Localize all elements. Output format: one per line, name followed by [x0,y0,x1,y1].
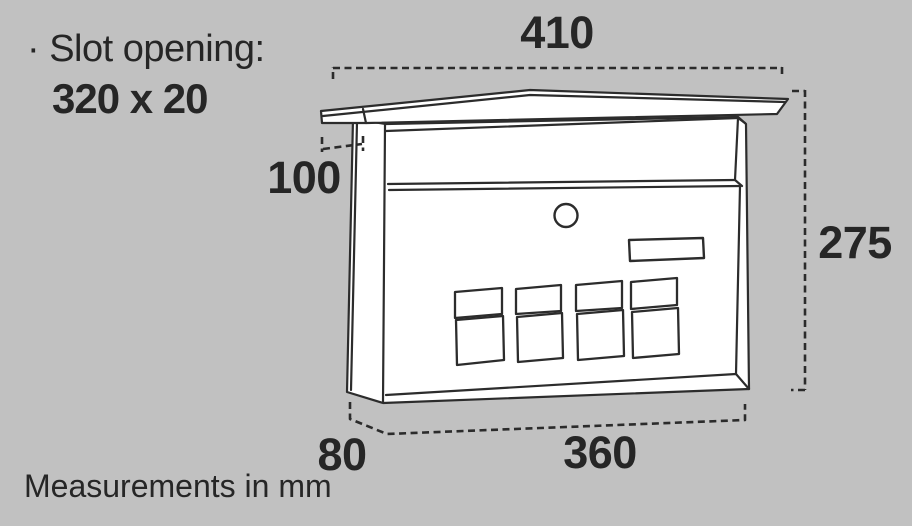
diagram-canvas: · Slot opening: 320 x 20 410 100 275 80 … [0,0,912,526]
name-plate [629,238,704,261]
window-panel [631,278,677,309]
window-panel [577,310,624,360]
window-panel [576,281,622,311]
window-panel [517,313,563,362]
dimension-label-lid-overhang: 100 [249,155,359,200]
dimension-label-front-width: 360 [545,430,655,475]
units-note: Measurements in mm [24,470,332,502]
window-panel [632,308,679,358]
slot-opening-note-line1: · Slot opening: [27,30,265,68]
window-panel [456,316,504,365]
window-panel [455,288,502,318]
dimension-label-height: 275 [800,220,910,265]
lock-circle [555,204,578,227]
dimension-line-top-width [333,67,782,79]
window-panel [516,285,561,314]
dimension-label-top-width: 410 [502,10,612,55]
slot-opening-note-line2: 320 x 20 [52,78,208,120]
